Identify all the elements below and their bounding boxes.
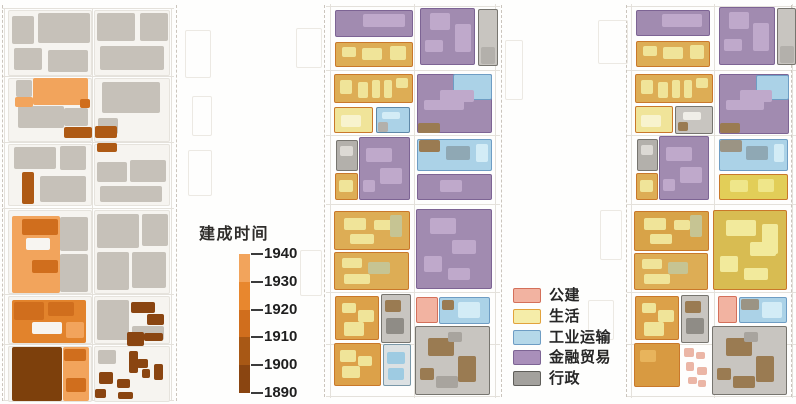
right-map-block (684, 348, 694, 357)
left-map-block (140, 13, 168, 41)
right-map-block (780, 46, 794, 63)
right-map-block (756, 356, 774, 382)
left-map-block (32, 322, 62, 334)
right-map-block (678, 122, 688, 131)
right-map-block (753, 23, 769, 51)
right-map-block (641, 80, 653, 94)
right-map-block (672, 80, 680, 98)
right-map-block (717, 368, 731, 380)
legend-tick-label: 1910 (264, 328, 297, 346)
left-map-block (97, 162, 127, 182)
right-map-block (637, 139, 658, 171)
middle-map-block (458, 356, 476, 382)
left-map-block (64, 349, 86, 361)
build-time-color-bar (239, 254, 250, 393)
land-use-swatch (513, 309, 541, 324)
middle-map-block (363, 14, 405, 27)
middle-map-block (344, 218, 366, 230)
right-map-block (683, 112, 701, 120)
right-map-block (758, 179, 774, 192)
middle-map-block (388, 368, 404, 380)
left-map-block (97, 143, 117, 152)
middle-map-block (342, 303, 356, 313)
right-map-block (762, 224, 778, 254)
left-map-block (118, 392, 133, 399)
left-map-block (95, 389, 106, 398)
left-map-block (22, 172, 34, 204)
land-use-swatch (513, 371, 541, 386)
right-map-block (746, 146, 768, 160)
land-use-label: 公建 (549, 288, 580, 304)
left-map-block (95, 126, 117, 138)
left-map-block (48, 302, 74, 316)
middle-map-block (378, 122, 388, 132)
middle-map-block (390, 215, 402, 237)
right-map-block (674, 220, 690, 230)
right-map-block (680, 167, 702, 183)
legend-tick (251, 364, 263, 366)
time-bar-segment (239, 310, 250, 338)
right-map-block (696, 352, 705, 359)
right-map-block (641, 145, 653, 155)
middle-map-block (341, 115, 361, 127)
middle-map-block (362, 48, 382, 60)
right-map-block (658, 310, 674, 322)
left-map-block (102, 82, 160, 113)
left-map-block (97, 214, 139, 248)
right-map-block (697, 367, 707, 375)
legend-tick-label: 1920 (264, 301, 297, 319)
legend-tick (251, 392, 263, 394)
left-map-block (38, 13, 90, 43)
right-map-block (644, 274, 670, 284)
middle-map-block (396, 78, 408, 88)
right-map-block (762, 302, 782, 318)
right-map-block (641, 115, 661, 127)
right-map-block (720, 140, 742, 152)
middle-map-block (358, 356, 372, 366)
left-map-block (14, 302, 44, 320)
right-map-block (741, 299, 759, 310)
middle-map-block (385, 300, 401, 312)
middle-map-block (418, 123, 440, 133)
middle-map-block (436, 376, 458, 388)
right-map-block (668, 262, 688, 274)
right-map-block (774, 144, 784, 162)
right-map-block (720, 256, 738, 272)
middle-map-block (384, 80, 392, 98)
middle-map-block (382, 112, 400, 119)
left-map-block (142, 369, 150, 378)
middle-map-block (358, 82, 368, 98)
land-use-swatch (513, 288, 541, 303)
right-map-block (690, 215, 702, 237)
time-bar-segment (239, 365, 250, 393)
right-map-block (744, 332, 758, 342)
land-use-swatch (513, 330, 541, 345)
legend-tick-label: 1900 (264, 356, 297, 374)
middle-map-block (458, 302, 480, 318)
right-map-block (726, 100, 764, 110)
left-map-block (14, 48, 42, 70)
middle-map-block (380, 168, 402, 184)
middle-map-block (340, 350, 356, 362)
middle-map-block (339, 180, 353, 192)
middle-map-block (340, 80, 352, 94)
right-map-block (685, 301, 701, 313)
middle-map-block (387, 352, 405, 364)
left-map-block (154, 364, 163, 380)
build-time-legend-title: 建成时间 (199, 220, 269, 244)
left-map-block (66, 322, 84, 338)
legend-tick (251, 253, 263, 255)
left-map-block (100, 186, 162, 202)
right-map-block (684, 80, 692, 98)
right-map-block (658, 82, 668, 98)
left-map-block (80, 99, 90, 108)
right-map-block (724, 39, 742, 51)
land-use-swatch (513, 350, 541, 365)
middle-map-block (386, 318, 404, 334)
time-bar-segment (239, 282, 250, 310)
middle-map-block (442, 300, 454, 310)
left-map-block (15, 97, 33, 107)
right-map-block (696, 78, 708, 88)
left-map-block (64, 108, 88, 126)
right-map-block (640, 180, 653, 192)
right-map-block (662, 14, 702, 27)
middle-map-block (368, 262, 390, 274)
middle-map-block (420, 368, 434, 380)
left-map-block (66, 378, 86, 392)
left-map-block (12, 347, 62, 401)
legend-tick-label: 1940 (264, 245, 297, 263)
figure-canvas: 建成时间 194019301920191019001890 公建生活工业运输金融… (0, 0, 796, 404)
map-blocks-layer (0, 0, 796, 404)
land-use-label: 金融贸易 (549, 350, 611, 366)
right-map-block (642, 259, 662, 269)
right-map-block (744, 268, 768, 280)
right-map-block (726, 220, 756, 236)
right-map-block (663, 47, 683, 59)
left-map-block (98, 350, 116, 364)
middle-map-block (342, 366, 360, 378)
middle-map-block (350, 234, 374, 244)
middle-map-block (344, 274, 370, 284)
right-map-block (730, 180, 748, 192)
land-use-label: 工业运输 (549, 330, 611, 346)
middle-map-block (424, 100, 464, 110)
middle-map-block (448, 332, 462, 342)
left-map-block (147, 314, 164, 325)
left-map-block (16, 80, 32, 97)
middle-map-block (366, 148, 392, 162)
right-map-block (644, 218, 666, 230)
left-map-block (100, 46, 164, 70)
right-map-block (686, 362, 694, 371)
left-map-block (32, 260, 58, 273)
right-map-block (729, 12, 749, 29)
right-map-block (720, 123, 740, 133)
left-map-block (127, 332, 144, 346)
left-map-block (97, 13, 135, 41)
left-map-block (48, 50, 88, 72)
right-map-block (698, 380, 706, 387)
left-map-block (132, 252, 166, 288)
legend-tick-label: 1930 (264, 273, 297, 291)
middle-map-block (448, 268, 470, 280)
right-map-block (666, 147, 692, 161)
right-map-block (663, 179, 675, 191)
land-use-label: 生活 (549, 309, 580, 325)
middle-map-block (342, 258, 362, 268)
left-map-block (26, 238, 50, 250)
time-bar-segment (239, 337, 250, 365)
middle-map-block (419, 140, 440, 152)
middle-map-block (455, 24, 471, 52)
middle-map-block (430, 218, 456, 234)
left-map-block (60, 254, 88, 292)
middle-map-block (425, 40, 443, 52)
left-map-block (60, 217, 88, 251)
right-map-block (688, 377, 697, 384)
middle-map-block (476, 144, 488, 162)
left-map-block (97, 300, 129, 340)
middle-map-block (390, 46, 406, 60)
left-map-block (40, 176, 86, 202)
left-map-block (14, 147, 56, 169)
left-map-block (144, 333, 163, 341)
left-map-block (99, 372, 113, 384)
left-map-block (117, 379, 130, 388)
middle-map-block (440, 180, 462, 192)
right-map-block (733, 376, 755, 388)
middle-map-block (446, 146, 470, 160)
middle-map-block (430, 13, 450, 30)
right-map-block (686, 318, 704, 334)
right-map-block (718, 296, 737, 323)
right-map-block (690, 45, 704, 59)
middle-map-block (342, 47, 356, 57)
legend-tick-label: 1890 (264, 384, 297, 402)
left-map-block (142, 214, 168, 246)
middle-map-block (481, 47, 495, 64)
left-map-block (60, 146, 86, 170)
middle-map-block (372, 80, 380, 98)
middle-map-block (344, 322, 364, 336)
middle-map-block (424, 256, 442, 272)
right-map-block (642, 303, 656, 313)
left-map-block (12, 16, 34, 44)
legend-tick (251, 281, 263, 283)
right-map-block (643, 46, 657, 56)
middle-map-block (452, 240, 476, 254)
left-map-block (97, 252, 129, 290)
land-use-label: 行政 (549, 371, 580, 387)
left-map-block (64, 127, 92, 138)
left-map-block (22, 219, 58, 235)
right-map-block (640, 350, 656, 362)
legend-tick (251, 336, 263, 338)
time-bar-segment (239, 254, 250, 282)
legend-tick (251, 309, 263, 311)
middle-map-block (340, 146, 353, 156)
left-map-block (130, 160, 166, 182)
left-map-block (137, 359, 148, 368)
middle-map-block (363, 180, 375, 192)
left-map-block (18, 106, 64, 128)
right-map-block (644, 322, 664, 336)
right-map-block (650, 234, 672, 244)
middle-map-block (358, 310, 374, 322)
left-map-block (131, 302, 155, 313)
middle-map-block (416, 297, 438, 323)
